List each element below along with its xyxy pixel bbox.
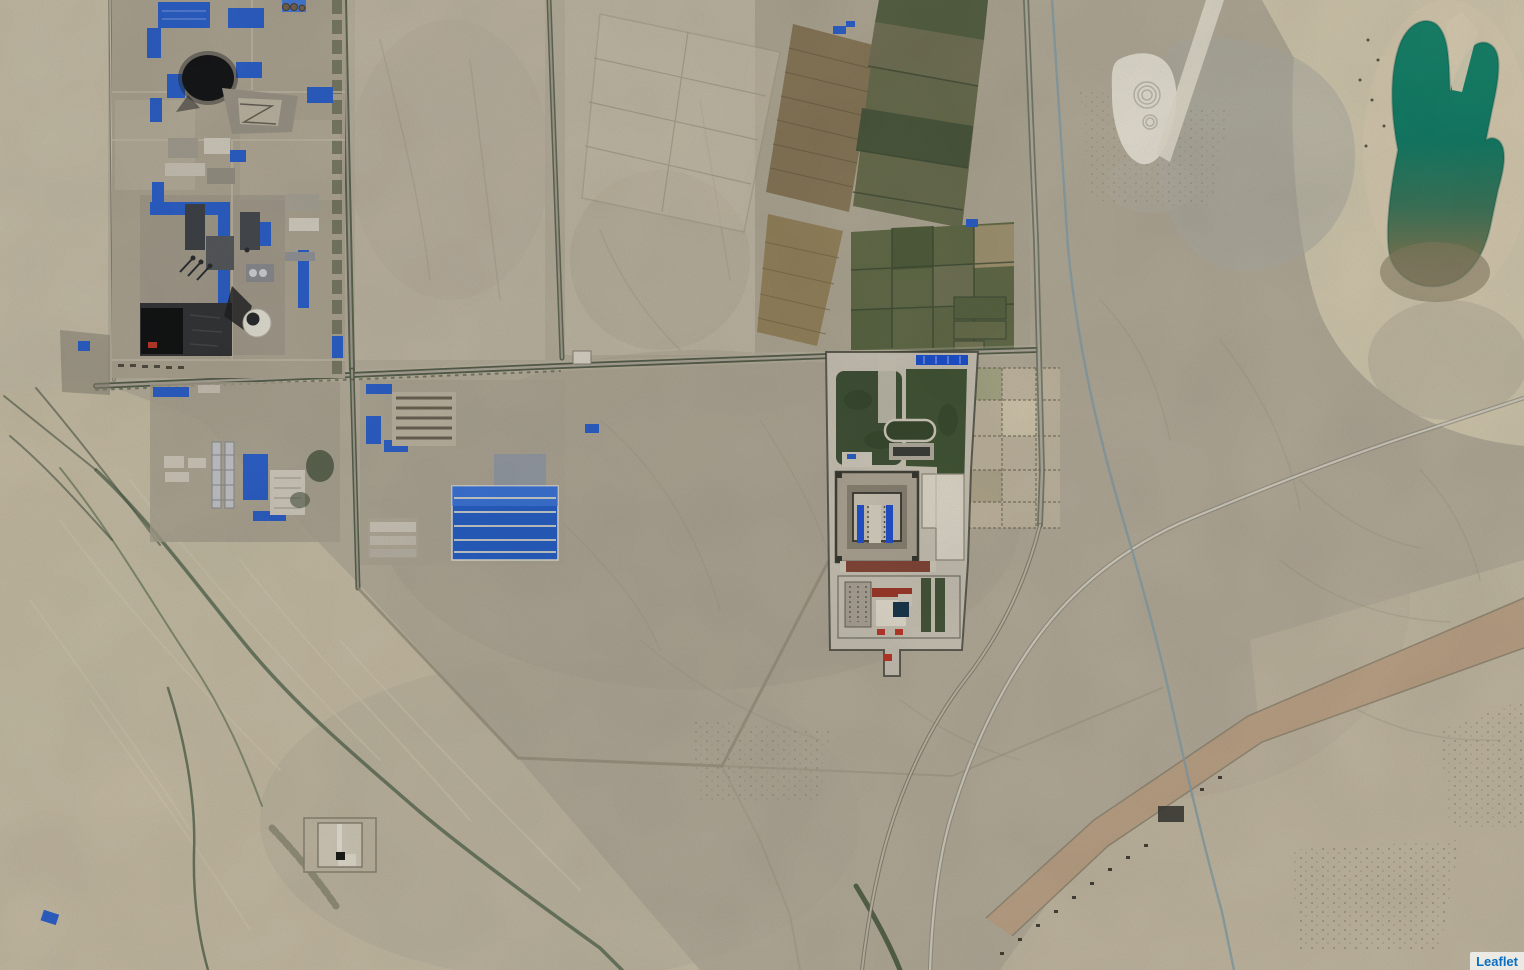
leaflet-attribution-link[interactable]: Leaflet bbox=[1476, 954, 1518, 969]
grain-overlay bbox=[0, 0, 1524, 970]
map-canvas[interactable]: Leaflet bbox=[0, 0, 1524, 970]
satellite-image bbox=[0, 0, 1524, 970]
leaflet-attribution: Leaflet bbox=[1470, 952, 1524, 970]
